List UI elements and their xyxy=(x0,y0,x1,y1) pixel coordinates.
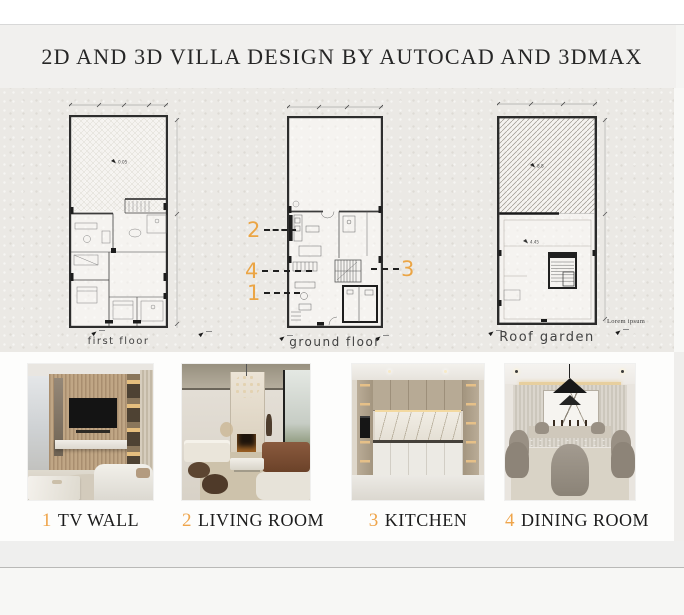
dining-chair xyxy=(591,422,605,434)
benchmark-value-smudge xyxy=(623,329,629,330)
right-margin-gallery xyxy=(674,352,684,541)
dimension-line-vertical-roof xyxy=(600,118,610,323)
dimension-line-ground-floor xyxy=(287,102,383,112)
oven xyxy=(360,416,370,438)
plan-marker-2: 2 xyxy=(247,220,260,241)
page-root: 2D AND 3D VILLA DESIGN BY AUTOCAD AND 3D… xyxy=(0,0,684,615)
spotlight xyxy=(621,370,624,373)
level-mark-roof-2: 4.45 xyxy=(530,240,539,245)
gallery-caption: 4DINING ROOM xyxy=(505,509,635,532)
plan-marker-3-line xyxy=(371,268,399,270)
level-mark-first-floor: 0.05 xyxy=(118,160,128,165)
ceiling xyxy=(352,364,484,380)
dining-chair xyxy=(505,442,529,478)
gallery-item-tv-wall: 1TV WALL xyxy=(28,364,153,532)
plan-label-ground-floor: ground floor xyxy=(287,335,383,349)
gallery-caption: 3KITCHEN xyxy=(352,509,484,532)
pendant-stem xyxy=(569,364,570,378)
plan-label-roof-garden: Roof garden xyxy=(497,330,597,345)
dried-plant xyxy=(220,422,233,437)
caption-number: 2 xyxy=(182,510,192,531)
gallery-item-dining-room: 4DINING ROOM xyxy=(505,364,635,532)
spotlight xyxy=(515,370,518,373)
benchmark-value-smudge xyxy=(99,330,105,331)
gallery-item-kitchen: 3KITCHEN xyxy=(352,364,484,532)
benchmark-value-smudge xyxy=(383,335,389,336)
sofa-left xyxy=(184,440,230,462)
chaise xyxy=(256,472,310,500)
dining-chair xyxy=(611,442,635,478)
right-margin-header xyxy=(676,25,684,88)
caption-label: DINING ROOM xyxy=(521,510,649,530)
photo-tv-wall xyxy=(28,364,153,500)
top-strip xyxy=(0,0,684,25)
plan-marker-1-line xyxy=(264,292,300,294)
spotlight xyxy=(388,370,391,373)
statue xyxy=(266,414,272,436)
caption-label: KITCHEN xyxy=(385,510,468,530)
caption-label: LIVING ROOM xyxy=(198,510,324,530)
caption-label: TV WALL xyxy=(58,510,139,530)
level-mark-roof: 8.8 xyxy=(537,164,544,169)
caption-number: 3 xyxy=(369,510,379,531)
plan-marker-2-line xyxy=(264,229,296,231)
curtain xyxy=(140,370,153,472)
dining-chair xyxy=(535,422,549,434)
benchmark-value-smudge xyxy=(287,335,293,336)
photo-dining-room xyxy=(505,364,635,500)
lit-shelving xyxy=(127,374,140,470)
gallery-item-living-room: 2LIVING ROOM xyxy=(182,364,310,532)
plan-marker-3: 3 xyxy=(401,259,414,280)
gallery-caption: 2LIVING ROOM xyxy=(182,509,310,532)
benchmark-value-smudge xyxy=(496,330,502,331)
page-title: 2D AND 3D VILLA DESIGN BY AUTOCAD AND 3D… xyxy=(41,44,642,70)
benchmark-value-smudge xyxy=(206,331,212,332)
tall-cabinet-right xyxy=(463,380,479,480)
hallway-glimpse xyxy=(28,364,49,470)
lower-cabinets xyxy=(373,443,463,475)
media-console xyxy=(55,440,131,449)
header-band: 2D AND 3D VILLA DESIGN BY AUTOCAD AND 3D… xyxy=(0,25,684,88)
ottoman xyxy=(202,474,228,494)
dimension-line-first-floor xyxy=(69,100,168,110)
spotlight xyxy=(444,370,447,373)
dining-chair xyxy=(551,444,589,496)
plan-marker-1: 1 xyxy=(247,283,260,304)
plan-drawing-ground-floor xyxy=(287,116,383,328)
marble-floor xyxy=(352,475,484,500)
roof-note: Lorem ipsum xyxy=(607,318,645,325)
coffee-table xyxy=(230,458,264,470)
tv-screen xyxy=(69,398,117,428)
dimension-line-vertical-first xyxy=(172,118,182,328)
sofa-leather xyxy=(262,442,310,472)
caption-number: 1 xyxy=(42,510,52,531)
table-decor xyxy=(52,480,62,484)
dimension-line-roof-garden xyxy=(497,99,597,109)
plan-drawing-first-floor: 0.05 xyxy=(69,115,168,328)
fireplace xyxy=(237,434,256,452)
plan-label-first-floor: first floor xyxy=(69,336,168,347)
plan-marker-4: 4 xyxy=(245,261,258,282)
footer-band-lower xyxy=(0,568,684,615)
right-margin-plans xyxy=(674,88,684,352)
upper-cabinets xyxy=(373,380,463,411)
plan-drawing-roof-garden: 8.8 4.45 xyxy=(497,116,597,325)
window xyxy=(283,370,310,446)
chandelier xyxy=(234,374,260,398)
plan-marker-4-line xyxy=(262,270,312,272)
gallery-caption: 1TV WALL xyxy=(28,509,153,532)
soundbar xyxy=(76,430,110,433)
shelf-lighting xyxy=(466,384,476,474)
footer-band-upper xyxy=(0,541,684,567)
caption-number: 4 xyxy=(505,510,515,531)
pillow xyxy=(136,468,150,478)
marble-backsplash xyxy=(375,410,461,442)
photo-kitchen xyxy=(352,364,484,500)
photo-living-room xyxy=(182,364,310,500)
